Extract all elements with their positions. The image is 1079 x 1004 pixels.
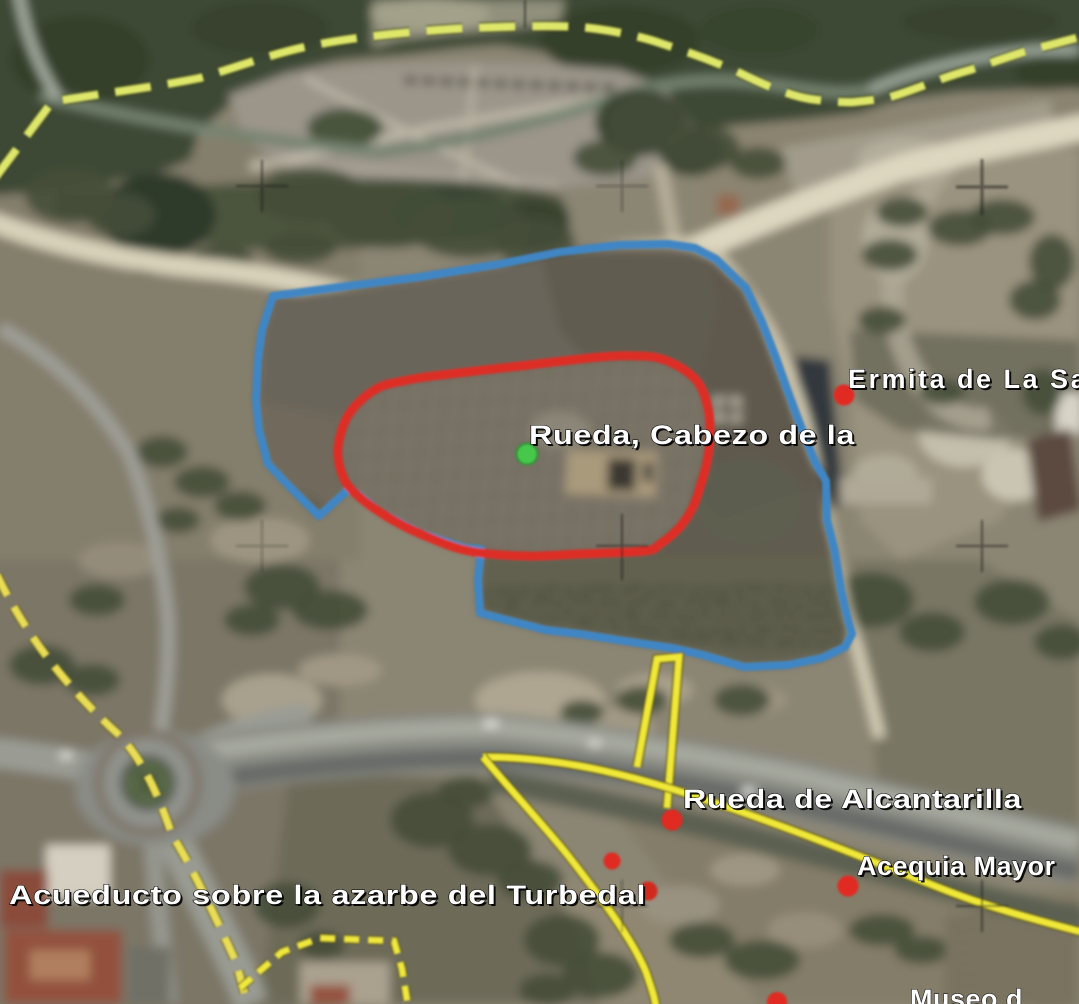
svg-text:Acueducto sobre la azarbe del: Acueducto sobre la azarbe del Turbedal [9,880,646,910]
svg-text:Acequia Mayor: Acequia Mayor [857,851,1056,881]
svg-text:Ermita de La Salud: Ermita de La Salud [848,364,1079,394]
svg-text:Rueda de Alcantarilla: Rueda de Alcantarilla [683,784,1023,814]
svg-text:Rueda, Cabezo de la: Rueda, Cabezo de la [529,420,856,450]
svg-text:Museo d: Museo d [910,984,1023,1004]
